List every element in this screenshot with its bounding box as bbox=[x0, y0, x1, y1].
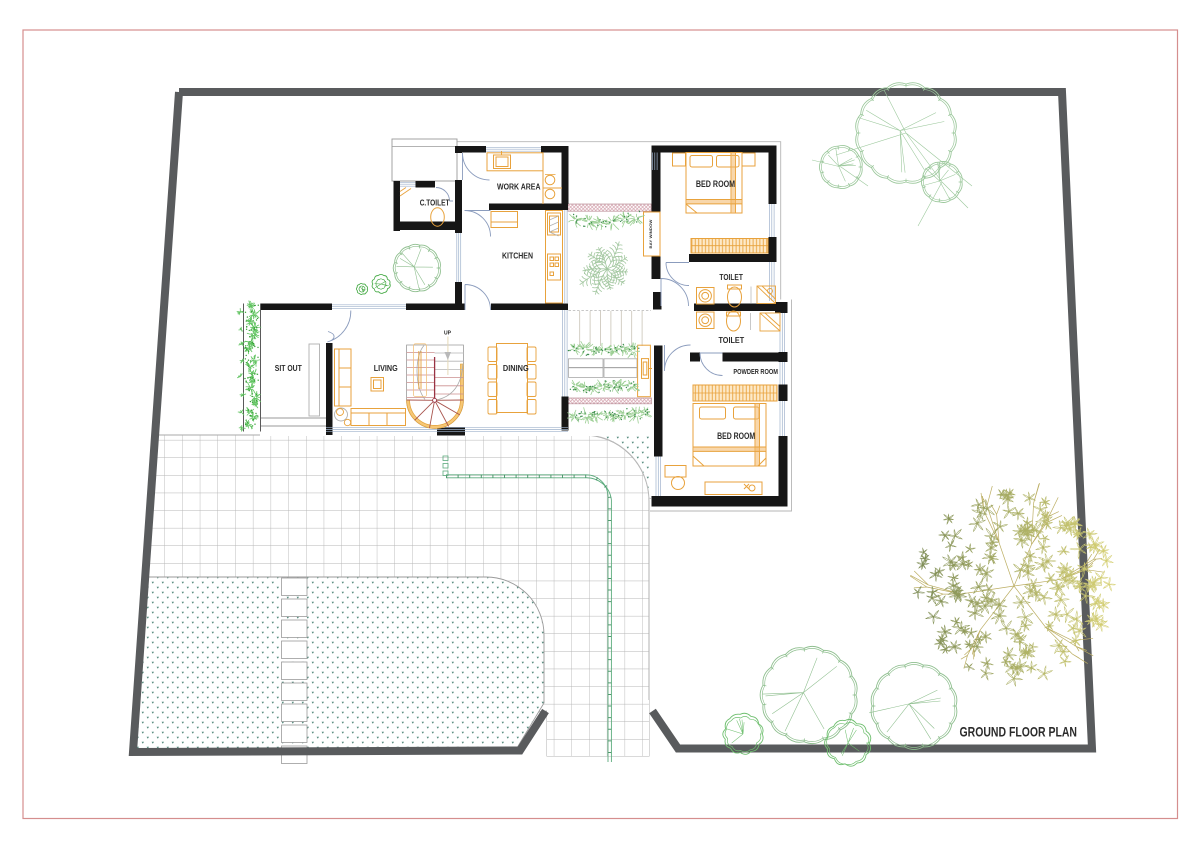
svg-text:DINING: DINING bbox=[503, 363, 529, 373]
svg-text:LIVING: LIVING bbox=[374, 363, 398, 373]
svg-text:UP: UP bbox=[444, 331, 451, 337]
svg-text:TOILET: TOILET bbox=[719, 272, 743, 282]
svg-text:POWDER ROOM: POWDER ROOM bbox=[733, 369, 778, 376]
svg-text:GROUND FLOOR PLAN: GROUND FLOOR PLAN bbox=[960, 724, 1078, 740]
svg-text:WORK AREA: WORK AREA bbox=[497, 182, 541, 192]
svg-text:KITCHEN: KITCHEN bbox=[502, 250, 533, 260]
svg-text:BAY WINDOW: BAY WINDOW bbox=[648, 219, 653, 248]
svg-text:BED ROOM: BED ROOM bbox=[717, 431, 755, 441]
svg-text:SIT OUT: SIT OUT bbox=[275, 363, 303, 373]
svg-text:TOILET: TOILET bbox=[719, 335, 745, 345]
svg-text:C.TOILET: C.TOILET bbox=[420, 198, 450, 208]
svg-text:BED ROOM: BED ROOM bbox=[696, 179, 735, 189]
